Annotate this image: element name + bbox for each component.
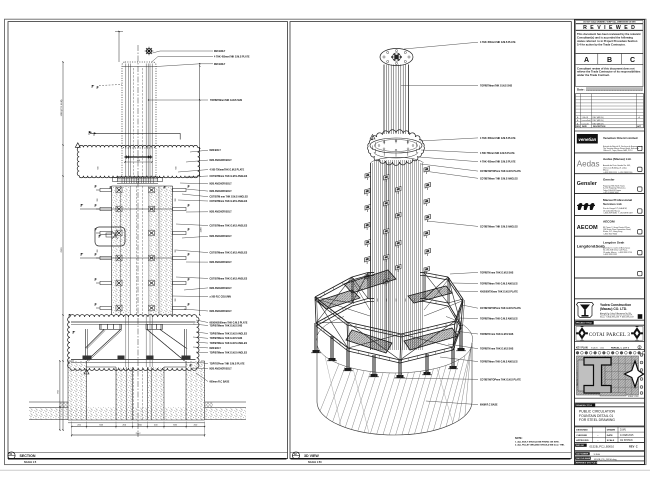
svg-text:TOP/BTMmm THK G.M.S ANGLES: TOP/BTMmm THK G.M.S ANGLES [480, 361, 518, 364]
svg-text:M20 ANCHOR BOLT: M20 ANCHOR BOLT [210, 261, 233, 264]
svg-text:DWG NO: DWG NO [576, 445, 585, 447]
svg-text:2530: 2530 [61, 247, 63, 253]
svg-text:SCALE 1:50: SCALE 1:50 [308, 461, 322, 464]
svg-text:600/500/500mm THK G.M.S PLATE: 600/500/500mm THK G.M.S PLATE [210, 321, 248, 324]
svg-text:TOP/BTMmm THK G.M.S SHS: TOP/BTMmm THK G.M.S SHS [210, 325, 243, 327]
svg-text:Venetian Orient Limited: Venetian Orient Limited [603, 136, 638, 140]
svg-text:DO NOT SCALE DRAWING. VERIFY A: DO NOT SCALE DRAWING. VERIFY ALL DIMENSI… [583, 21, 636, 24]
svg-text:COT/BTMmm THK G.M.S ANGLES: COT/BTMmm THK G.M.S ANGLES [480, 225, 518, 228]
svg-text:1288 (FTG SUM): 1288 (FTG SUM) [61, 99, 63, 116]
svg-text:under the Trade Contract.: under the Trade Contract. [577, 73, 610, 77]
svg-text:APPROVED: APPROVED [576, 439, 589, 442]
svg-text:DESCRIPTION: DESCRIPTION [593, 126, 606, 128]
svg-text:4 THK 450mmTHK G.M.S PLATE: 4 THK 450mmTHK G.M.S PLATE [480, 161, 516, 164]
svg-text:B: B [607, 57, 612, 64]
svg-text:DATE: DATE [582, 125, 588, 128]
svg-text:NOTE:: NOTE: [515, 437, 523, 440]
svg-text:Langdon Seah: Langdon Seah [603, 241, 624, 245]
svg-text:M20 ANCHOR BOLT: M20 ANCHOR BOLT [210, 368, 233, 371]
svg-text:0152B_PCJ_B0010: 0152B_PCJ_B0010 [590, 445, 615, 449]
svg-text:DATE: DATE [607, 434, 613, 437]
svg-text:Aedas: Aedas [577, 160, 600, 169]
svg-text:CAD FILE NAME: CAD FILE NAME [576, 457, 591, 460]
svg-text:3D VIEW: 3D VIEW [304, 454, 319, 458]
svg-text:AS SHOWN: AS SHOWN [620, 439, 633, 442]
svg-text:4 500 750mmTHK G.M.S PLATE: 4 500 750mmTHK G.M.S PLATE [480, 152, 515, 155]
svg-text:600M R.C BASE: 600M R.C BASE [480, 404, 498, 407]
svg-text:Macau T: (853) 2875-2218 F:: Macau T: (853) 2875-2218 F: (853) 2875-2… [600, 317, 634, 319]
svg-text:14 FEB 2015: 14 FEB 2015 [620, 435, 634, 437]
svg-text:status referred to in Project: status referred to in Project Procedure … [577, 39, 638, 43]
svg-text:SCALE 1 : 1500: SCALE 1 : 1500 [591, 347, 604, 350]
svg-text:TOP/BTM mm THK G.M.S SHS: TOP/BTM mm THK G.M.S SHS [480, 272, 514, 274]
svg-text:Services Ltd.: Services Ltd. [603, 202, 622, 206]
svg-text:TOP/BTMmm THK G.M.S ANGLES: TOP/BTMmm THK G.M.S ANGLES [480, 318, 518, 321]
svg-text:600mm R.C BASE: 600mm R.C BASE [210, 380, 230, 383]
svg-text:t +81 03 6406 5600: t +81 03 6406 5600 [603, 191, 619, 194]
svg-text:FOUNTAIN DETAIL 01: FOUNTAIN DETAIL 01 [579, 414, 613, 418]
svg-text:M20 BOLT: M20 BOLT [214, 51, 226, 53]
svg-text:x 500 R.C COLUMN: x 500 R.C COLUMN [210, 297, 232, 299]
svg-text:A: A [584, 57, 589, 64]
svg-text:TOP/BTMmmTHK G.M.S SHS: TOP/BTMmmTHK G.M.S SHS [480, 85, 512, 87]
svg-text:(cancelled): (cancelled) [582, 120, 592, 122]
svg-text:DESIGNED: DESIGNED [576, 430, 588, 432]
svg-text:4 500 750mmTHK G.M.S PLATE: 4 500 750mmTHK G.M.S PLATE [210, 169, 245, 172]
svg-text:relieve the Trade Contractor o: relieve the Trade Contractor of its resp… [577, 70, 641, 74]
svg-text:PARCEL 1, LOT 3: PARCEL 1, LOT 3 [611, 347, 630, 350]
svg-text:t +852 3922 9000: t +852 3922 9000 [603, 232, 617, 235]
svg-text:TOP/BTMmm THK G.M.S ANGLES: TOP/BTMmm THK G.M.S ANGLES [210, 342, 248, 345]
svg-text:1288: 1288 [201, 227, 203, 233]
svg-text:M20 BOLT: M20 BOLT [210, 150, 222, 152]
svg-text:COT/BTM/TOPmm THK G.M.S PLATE: COT/BTM/TOPmm THK G.M.S PLATE [480, 307, 521, 310]
svg-text:M20 ANCHOR BOLT: M20 ANCHOR BOLT [210, 287, 233, 290]
svg-text:4 THK 450mmTHK G.M.S PLATE: 4 THK 450mmTHK G.M.S PLATE [214, 56, 250, 59]
svg-text:C: C [630, 57, 635, 64]
svg-text:Consultant review of this docu: Consultant review of this document does … [577, 66, 635, 70]
svg-text:Gensler: Gensler [577, 181, 598, 187]
svg-text:3-1UA: 3-1UA [594, 453, 601, 456]
svg-text:AECOM: AECOM [577, 225, 598, 231]
svg-text:TOP/TOPmm THK G.M.S PLATE: TOP/TOPmm THK G.M.S PLATE [210, 363, 246, 366]
svg-text:COT/BTM mm THK G.M.S ANGLES: COT/BTM mm THK G.M.S ANGLES [210, 196, 249, 199]
svg-text:venetian: venetian [578, 137, 596, 142]
svg-text:M20 ANCHOR BOLT: M20 ANCHOR BOLT [210, 310, 233, 313]
svg-text:KEY PLAN: KEY PLAN [576, 347, 588, 350]
svg-text:TOP/BTMmmTHK G.M.S SHS: TOP/BTMmmTHK G.M.S SHS [210, 100, 242, 102]
svg-text:SCALE 1:5: SCALE 1:5 [24, 461, 37, 464]
svg-text:SECTION: SECTION [20, 454, 36, 458]
svg-text:COT/BTMmm THK G.M.S ANGLES: COT/BTMmm THK G.M.S ANGLES [210, 277, 248, 280]
svg-text:PARCEL 1, LOT 1: PARCEL 1, LOT 1 [576, 369, 579, 386]
svg-text:DRAWING TITLE: DRAWING TITLE [576, 404, 592, 407]
svg-text:REV C: REV C [629, 445, 638, 449]
svg-text:(Macau) CO. LTD.: (Macau) CO. LTD. [600, 307, 627, 311]
svg-text:1. ALL BOLT SHOULD BE FIXING O: 1. ALL BOLT SHOULD BE FIXING ON SITE. [515, 440, 560, 443]
svg-text:REV (ARCH): REV (ARCH) [593, 119, 604, 122]
svg-text:(consult): (consult) [582, 122, 590, 125]
svg-text:Date :: Date : [577, 87, 585, 91]
svg-text:Gensler: Gensler [603, 178, 615, 182]
svg-text:PUBLIC CIRCULATION: PUBLIC CIRCULATION [579, 409, 615, 413]
svg-text:t +853 2833 1113 f +853 2833: t +853 2833 1113 f +853 2833 1990 [603, 171, 632, 174]
svg-text:M20 ANCHOR BOLT: M20 ANCHOR BOLT [210, 183, 233, 186]
svg-text:D.WU: D.WU [620, 430, 626, 432]
svg-text:COT/BTM/TOPmm THK G.M.S PLATE: COT/BTM/TOPmm THK G.M.S PLATE [480, 170, 521, 173]
svg-text:COT/BTMmm THK G.M.S ANGLES: COT/BTMmm THK G.M.S ANGLES [480, 177, 518, 180]
svg-text:M20 ANCHOR BOLT: M20 ANCHOR BOLT [210, 159, 233, 162]
svg-text:COT/BTMmm THK G.M.S ANGLES: COT/BTMmm THK G.M.S ANGLES [210, 224, 248, 227]
svg-text:CAD NUMBER: CAD NUMBER [576, 453, 589, 456]
svg-text:2. ALL FILLET WELDED SHOULD BE: 2. ALL FILLET WELDED SHOULD BE 6mm THK. [515, 444, 565, 447]
svg-text:This document has been reviewe: This document has been reviewed by the r… [577, 32, 641, 36]
svg-text:TOP/BTMmm THK G.M.S ANGLES: TOP/BTMmm THK G.M.S ANGLES [480, 283, 518, 286]
svg-text:2942: 2942 [136, 433, 142, 435]
svg-text:1 04-08: 1 04-08 [582, 117, 588, 119]
svg-text:REV (ARCH): REV (ARCH) [593, 122, 604, 125]
svg-text:Offices-L2, Taipa, Macau SAR,: Offices-L2, Taipa, Macau SAR, P.R.C. [603, 149, 634, 152]
svg-text:M20 BOLT: M20 BOLT [214, 64, 226, 66]
svg-text:DRAWN: DRAWN [607, 429, 616, 432]
svg-text:4 THK 450mmTHK G.M.S PLATE: 4 THK 450mmTHK G.M.S PLATE [480, 137, 516, 140]
svg-text:0152B_PD_20150.dwg: 0152B_PD_20150.dwg [594, 459, 617, 461]
svg-text:TOP/BTMmm THK G.M.S ANGLES: TOP/BTMmm THK G.M.S ANGLES [210, 352, 248, 355]
svg-text:PROJECT TITLE: PROJECT TITLE [576, 323, 592, 325]
svg-text:f +853 2833 1532: f +853 2833 1532 [603, 254, 617, 256]
svg-text:TOP/BTM mm THK G.M.S SHS: TOP/BTM mm THK G.M.S SHS [480, 334, 514, 336]
svg-text:M20 ANCHOR BOLT: M20 ANCHOR BOLT [210, 235, 233, 238]
svg-text:CHECKED: CHECKED [576, 435, 587, 437]
svg-text:M20 BOLT: M20 BOLT [210, 348, 222, 350]
svg-text:5.4 for action by the Trade Co: 5.4 for action by the Trade Contractor. [577, 42, 626, 46]
svg-text:450/500/750mm THK G.M.S PLATE: 450/500/750mm THK G.M.S PLATE [480, 291, 518, 294]
svg-text:t +853 2878 6281 f +853 2878: t +853 2878 6281 f +853 2878 6187 [603, 212, 633, 215]
svg-text:Aedas (Macau) Ltd.: Aedas (Macau) Ltd. [603, 157, 632, 161]
svg-text:REFERENCE DWG FILE NAME: REFERENCE DWG FILE NAME [576, 462, 601, 465]
svg-text:SCALE: SCALE [607, 439, 615, 442]
svg-text:COT/BTMmm THK G.M.S ANGLES: COT/BTMmm THK G.M.S ANGLES [210, 175, 248, 178]
svg-text:4 THK 450mmTHK G.M.S PLATE: 4 THK 450mmTHK G.M.S PLATE [480, 41, 516, 44]
svg-text:TOP/BTM mm THK G.M.S SHS: TOP/BTM mm THK G.M.S SHS [480, 349, 514, 351]
svg-text:REV (ARCH): REV (ARCH) [593, 116, 604, 119]
svg-text:M20 ANCHOR BOLT: M20 ANCHOR BOLT [210, 190, 233, 193]
svg-text:COT/BTM/TOPmm THK G.M.S PLATE: COT/BTM/TOPmm THK G.M.S PLATE [480, 378, 521, 381]
svg-text:TOP/BTMmm THK G.M.S ANGLES: TOP/BTMmm THK G.M.S ANGLES [210, 332, 248, 335]
svg-text:COT/BTMmm THK G.M.S ANGLES: COT/BTMmm THK G.M.S ANGLES [210, 252, 248, 255]
svg-text:FOR STEEL DRAWING: FOR STEEL DRAWING [579, 418, 615, 422]
svg-text:R E V I E W E D: R E V I E W E D [583, 25, 636, 31]
svg-text:COTAI PARCEL 3: COTAI PARCEL 3 [589, 333, 631, 338]
svg-text:Consultant(s) and is accorded: Consultant(s) and is accorded the follow… [577, 36, 633, 40]
svg-text:COT/BTMmm THK G.M.S ANGLES: COT/BTMmm THK G.M.S ANGLES [210, 200, 248, 203]
svg-text:Langdon&Seah: Langdon&Seah [577, 245, 606, 249]
svg-text:TOP/BTMmm THK G.M.S SHS: TOP/BTMmm THK G.M.S SHS [210, 338, 243, 340]
svg-text:AECOM: AECOM [603, 220, 615, 224]
svg-text:M20 ANCHOR BOLT: M20 ANCHOR BOLT [210, 211, 233, 214]
